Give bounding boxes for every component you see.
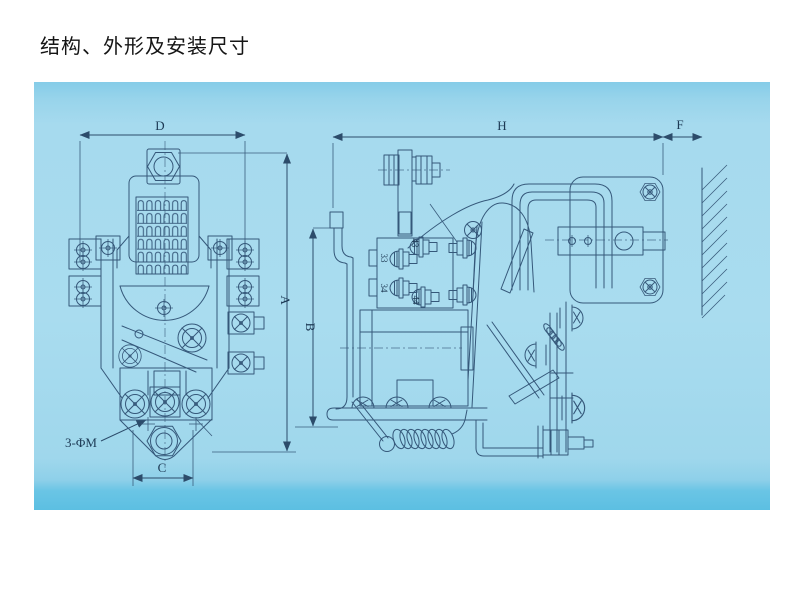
dimension-f: F: [663, 117, 702, 175]
plate-screw-icon: [640, 183, 660, 200]
main-terminal-icon: [121, 390, 149, 418]
phillips-screw-icon: [465, 222, 482, 239]
dim-label-b: B: [303, 323, 318, 332]
bottom-nut: [147, 426, 181, 455]
return-spring: [352, 399, 467, 452]
screw-icon: [211, 239, 229, 257]
dim-label-d: D: [155, 118, 164, 133]
diagram-panel: D A C 3-ΦM: [34, 82, 770, 510]
main-terminal-icon: [151, 388, 179, 416]
dim-label-h: H: [497, 118, 506, 133]
contact-screw-icon: [119, 345, 141, 367]
technical-drawing: D A C 3-ΦM: [34, 82, 770, 510]
side-screw-icon: [525, 342, 536, 368]
page-title: 结构、外形及安装尺寸: [40, 30, 250, 59]
top-bolt-assembly: [384, 150, 457, 242]
connector-loop: [512, 184, 612, 290]
pivot-arc: [120, 286, 209, 320]
arc-chute-grid: [136, 197, 188, 274]
top-stud-nut: [147, 149, 180, 184]
coil-screw-icon: [232, 354, 250, 372]
coil-terminals: [228, 312, 264, 374]
left-terminal-block: [69, 236, 120, 308]
dimension-c: C: [133, 430, 193, 486]
screw-icon: [74, 290, 92, 308]
terminal-label-43: 43: [410, 239, 420, 249]
side-screw-icon: [572, 305, 583, 331]
dim-label-f: F: [676, 117, 683, 132]
terminal-label-34: 34: [379, 284, 389, 294]
right-terminal-block: [208, 236, 259, 308]
side-view: H F B: [295, 117, 702, 458]
dimension-h: H: [333, 118, 663, 208]
wall-section: [702, 165, 727, 318]
front-view: D A C 3-ΦM: [65, 118, 296, 486]
dimension-b: B: [295, 228, 342, 427]
scanned-page: 结构、外形及安装尺寸: [0, 0, 800, 600]
side-screw-icon: [572, 393, 585, 423]
screw-icon: [99, 239, 117, 257]
aux-contact-block: 43 33 34 44: [369, 237, 476, 308]
wall-hatch: [702, 165, 727, 318]
terminal-label-44: 44: [411, 296, 421, 306]
coil-body: [360, 310, 473, 406]
terminal-label-33: 33: [379, 254, 389, 264]
dim-label-a: A: [278, 295, 293, 305]
main-terminal-icon: [182, 390, 210, 418]
coil-screw-icon: [232, 314, 250, 332]
contact-screw-icon: [178, 324, 206, 352]
aux-terminal-icon: [390, 249, 417, 269]
lower-right-support: [476, 302, 593, 458]
dim-label-c: C: [158, 460, 167, 475]
dimension-a: A: [178, 153, 296, 452]
pivot-screw-icon: [155, 299, 173, 317]
plate-screw-icon: [640, 278, 660, 295]
screw-icon: [236, 290, 254, 308]
screw-icon: [236, 253, 254, 271]
mounting-note-label: 3-ΦM: [65, 435, 97, 450]
screw-icon: [74, 253, 92, 271]
lower-terminal-block: [120, 368, 212, 460]
